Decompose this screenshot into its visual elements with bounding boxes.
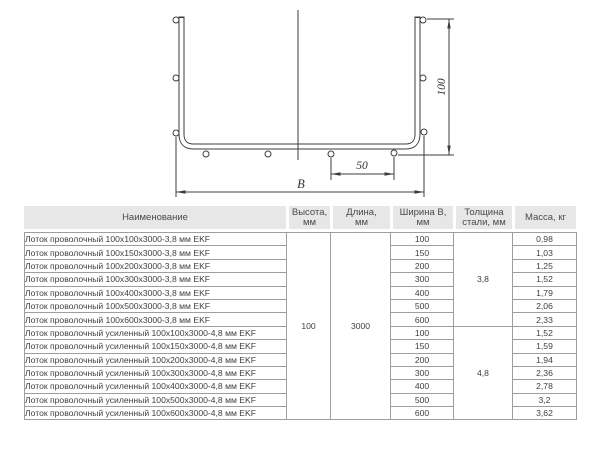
product-name-cell: Лоток проволочный 100x300x3000-3,8 мм EK… bbox=[25, 273, 287, 286]
product-name-cell: Лоток проволочный 100x500x3000-3,8 мм EK… bbox=[25, 299, 287, 312]
mass-cell: 1,52 bbox=[513, 326, 577, 339]
thickness-merged-cell: 4,8 bbox=[454, 326, 513, 420]
product-name-cell: Лоток проволочный 100x200x3000-3,8 мм EK… bbox=[25, 259, 287, 272]
width-cell: 150 bbox=[391, 340, 454, 353]
table-row: Лоток проволочный 100x100x3000-3,8 мм EK… bbox=[25, 233, 577, 246]
mass-cell: 2,78 bbox=[513, 380, 577, 393]
dim-label-spacing: 50 bbox=[356, 160, 368, 172]
mass-cell: 3,2 bbox=[513, 393, 577, 406]
mass-cell: 1,52 bbox=[513, 273, 577, 286]
mass-cell: 1,59 bbox=[513, 340, 577, 353]
width-cell: 300 bbox=[391, 366, 454, 379]
dim-label-height: 100 bbox=[436, 78, 448, 96]
col-header-length: Длина, мм bbox=[330, 206, 390, 229]
datasheet-page: 100 50 B Наименование Высота, мм Длина, … bbox=[0, 0, 600, 450]
width-cell: 600 bbox=[391, 407, 454, 420]
width-cell: 400 bbox=[391, 286, 454, 299]
product-name-cell: Лоток проволочный усиленный 100x200x3000… bbox=[25, 353, 287, 366]
arrowhead bbox=[331, 172, 341, 175]
col-header-width: Ширина В, мм bbox=[390, 206, 453, 229]
arrowhead bbox=[176, 190, 186, 193]
mass-cell: 1,94 bbox=[513, 353, 577, 366]
width-cell: 100 bbox=[391, 326, 454, 339]
width-cell: 100 bbox=[391, 233, 454, 246]
width-cell: 200 bbox=[391, 353, 454, 366]
mass-cell: 2,06 bbox=[513, 299, 577, 312]
col-header-mass: Масса, кг bbox=[512, 206, 576, 229]
width-cell: 500 bbox=[391, 299, 454, 312]
mass-cell: 2,36 bbox=[513, 366, 577, 379]
product-name-cell: Лоток проволочный усиленный 100x400x3000… bbox=[25, 380, 287, 393]
product-name-cell: Лоток проволочный усиленный 100x600x3000… bbox=[25, 407, 287, 420]
product-name-cell: Лоток проволочный усиленный 100x150x3000… bbox=[25, 340, 287, 353]
product-name-cell: Лоток проволочный 100x100x3000-3,8 мм EK… bbox=[25, 233, 287, 246]
thickness-merged-cell: 3,8 bbox=[454, 233, 513, 327]
width-cell: 500 bbox=[391, 393, 454, 406]
col-header-name: Наименование bbox=[24, 206, 286, 229]
col-header-height: Высота, мм bbox=[286, 206, 330, 229]
mass-cell: 1,79 bbox=[513, 286, 577, 299]
spec-table: Наименование Высота, мм Длина, мм Ширина… bbox=[24, 206, 576, 420]
product-name-cell: Лоток проволочный усиленный 100x500x3000… bbox=[25, 393, 287, 406]
width-cell: 600 bbox=[391, 313, 454, 326]
arrowhead bbox=[415, 190, 425, 193]
height-merged-cell: 100 bbox=[287, 233, 331, 420]
length-merged-cell: 3000 bbox=[331, 233, 391, 420]
arrowhead bbox=[385, 172, 395, 175]
mass-cell: 0,98 bbox=[513, 233, 577, 246]
tray-wire-outline bbox=[182, 17, 418, 147]
width-cell: 300 bbox=[391, 273, 454, 286]
tray-wire-fill bbox=[182, 18, 418, 147]
table-body: Лоток проволочный 100x100x3000-3,8 мм EK… bbox=[24, 232, 577, 420]
product-name-cell: Лоток проволочный 100x150x3000-3,8 мм EK… bbox=[25, 246, 287, 259]
product-name-cell: Лоток проволочный усиленный 100x300x3000… bbox=[25, 366, 287, 379]
product-name-cell: Лоток проволочный усиленный 100x100x3000… bbox=[25, 326, 287, 339]
col-header-thickness: Толщина стали, мм bbox=[453, 206, 512, 229]
mass-cell: 2,33 bbox=[513, 313, 577, 326]
width-cell: 200 bbox=[391, 259, 454, 272]
mass-cell: 1,25 bbox=[513, 259, 577, 272]
mass-cell: 3,62 bbox=[513, 407, 577, 420]
width-cell: 150 bbox=[391, 246, 454, 259]
dim-label-width: B bbox=[297, 177, 305, 191]
tray-cross-section-diagram: 100 50 B bbox=[0, 0, 600, 200]
arrowhead bbox=[447, 146, 450, 156]
table-header-row: Наименование Высота, мм Длина, мм Ширина… bbox=[24, 206, 576, 229]
product-name-cell: Лоток проволочный 100x400x3000-3,8 мм EK… bbox=[25, 286, 287, 299]
longitudinal-wire-circles bbox=[173, 17, 427, 157]
mass-cell: 1,03 bbox=[513, 246, 577, 259]
width-cell: 400 bbox=[391, 380, 454, 393]
product-name-cell: Лоток проволочный 100x600x3000-3,8 мм EK… bbox=[25, 313, 287, 326]
arrowhead bbox=[447, 19, 450, 29]
